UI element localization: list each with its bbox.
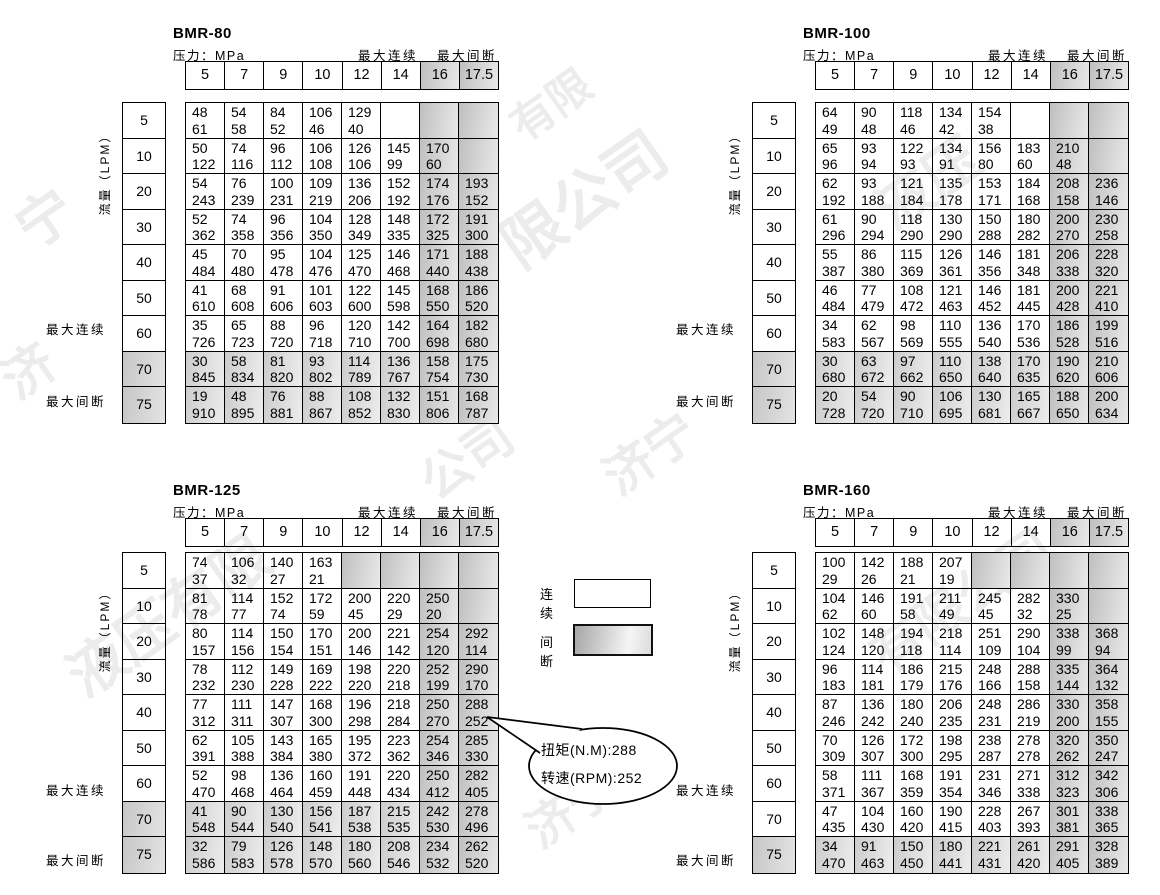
torque-speed-cell: 122600 <box>342 281 381 317</box>
torque-value: 106 <box>309 140 341 157</box>
data-grid: 6449904811846134421543865969394122931349… <box>815 102 1129 424</box>
speed-value: 380 <box>309 748 341 765</box>
speed-value: 362 <box>387 748 419 765</box>
speed-value: 412 <box>426 784 458 801</box>
torque-value: 129 <box>348 104 380 121</box>
torque-speed-cell: 278278 <box>1011 731 1050 767</box>
torque-speed-cell: 188438 <box>459 245 498 281</box>
torque-speed-cell: 206338 <box>1050 245 1089 281</box>
torque-value: 68 <box>231 282 263 299</box>
speed-value: 478 <box>270 263 302 280</box>
torque-speed-cell: 169222 <box>303 660 342 696</box>
torque-value: 147 <box>270 696 302 713</box>
torque-speed-cell: 254346 <box>420 731 459 767</box>
speed-value: 142 <box>387 642 419 659</box>
torque-speed-cell: 91606 <box>264 281 303 317</box>
speed-value: 311 <box>231 713 263 730</box>
flow-row-header: 50 <box>123 281 165 317</box>
torque-value: 148 <box>861 625 893 642</box>
torque-speed-cell: 9394 <box>855 139 894 175</box>
speed-value: 192 <box>822 192 854 209</box>
torque-speed-cell: 168300 <box>303 695 342 731</box>
speed-value: 74 <box>270 606 302 623</box>
torque-speed-cell: 5458 <box>225 103 264 139</box>
torque-value: 330 <box>1056 590 1088 607</box>
torque-speed-cell: 174176 <box>420 174 459 210</box>
empty-cell <box>1011 553 1050 589</box>
torque-value: 77 <box>192 696 224 713</box>
torque-speed-cell: 328389 <box>1089 837 1128 873</box>
torque-value: 250 <box>426 767 458 784</box>
flow-row-header: 30 <box>123 660 165 696</box>
speed-value: 171 <box>978 192 1010 209</box>
torque-speed-cell: 77312 <box>186 695 225 731</box>
torque-speed-cell: 252199 <box>420 660 459 696</box>
speed-value: 94 <box>1095 642 1128 659</box>
speed-value: 356 <box>978 263 1010 280</box>
torque-speed-cell: 96112 <box>264 139 303 175</box>
torque-value: 151 <box>426 388 458 405</box>
torque-speed-cell: 78232 <box>186 660 225 696</box>
speed-value: 620 <box>1056 369 1088 386</box>
torque-value: 211 <box>939 590 971 607</box>
speed-value: 46 <box>309 121 341 138</box>
torque-value: 234 <box>426 838 458 855</box>
torque-speed-cell: 128349 <box>342 210 381 246</box>
speed-value: 730 <box>465 369 498 386</box>
flow-row-header: 70 <box>753 352 795 388</box>
speed-value: 120 <box>861 642 893 659</box>
speed-value: 199 <box>426 677 458 694</box>
flow-row-header: 50 <box>753 281 795 317</box>
torque-speed-cell: 90294 <box>855 210 894 246</box>
torque-value: 146 <box>387 246 419 263</box>
speed-value: 881 <box>270 405 302 422</box>
flow-row-header: 30 <box>753 210 795 246</box>
torque-value: 101 <box>309 282 341 299</box>
torque-value: 190 <box>939 803 971 820</box>
speed-value: 60 <box>861 606 893 623</box>
torque-speed-cell: 16321 <box>303 553 342 589</box>
torque-value: 55 <box>822 246 854 263</box>
torque-value: 186 <box>1056 317 1088 334</box>
speed-value: 45 <box>978 606 1010 623</box>
speed-value: 262 <box>1056 748 1088 765</box>
speed-value: 834 <box>231 369 263 386</box>
torque-speed-cell: 41548 <box>186 802 225 838</box>
speed-value: 306 <box>1095 784 1128 801</box>
torque-speed-cell: 96718 <box>303 316 342 352</box>
torque-value: 220 <box>387 767 419 784</box>
speed-value: 662 <box>900 369 932 386</box>
torque-speed-cell: 364132 <box>1089 660 1128 696</box>
torque-value: 90 <box>900 388 932 405</box>
flow-header-col: 51020304050607075 <box>752 552 796 874</box>
torque-speed-cell: 301381 <box>1050 802 1089 838</box>
torque-value: 146 <box>978 282 1010 299</box>
torque-speed-cell: 70309 <box>816 731 855 767</box>
torque-value: 114 <box>861 661 893 678</box>
torque-speed-cell: 15680 <box>972 139 1011 175</box>
torque-speed-cell: 48895 <box>225 387 264 423</box>
torque-value: 32 <box>192 838 224 855</box>
flow-axis-label: 流量（LPM） <box>96 569 112 689</box>
torque-speed-cell: 74358 <box>225 210 264 246</box>
pressure-col-header: 16 <box>421 62 460 89</box>
speed-value: 606 <box>270 298 302 315</box>
torque-value: 191 <box>900 590 932 607</box>
torque-speed-cell: 70480 <box>225 245 264 281</box>
torque-speed-cell: 186528 <box>1050 316 1089 352</box>
speed-value: 118 <box>900 642 932 659</box>
pressure-col-header: 12 <box>973 62 1012 89</box>
torque-value: 342 <box>1095 767 1128 784</box>
speed-value: 484 <box>192 263 224 280</box>
torque-speed-cell: 10029 <box>816 553 855 589</box>
table-bmr-160: BMR-160 压力：MPa 最大连续 最大间断 5791012141617.5… <box>752 485 1127 885</box>
pressure-col-header: 12 <box>343 62 382 89</box>
torque-speed-cell: 180282 <box>1011 210 1050 246</box>
empty-cell <box>1011 103 1050 139</box>
data-grid: 7437106321402716321817811477152741725920… <box>185 552 499 874</box>
torque-value: 320 <box>1056 732 1088 749</box>
torque-speed-cell: 223362 <box>381 731 420 767</box>
torque-speed-cell: 9048 <box>855 103 894 139</box>
speed-value: 93 <box>900 156 932 173</box>
torque-value: 109 <box>309 175 341 192</box>
torque-speed-cell: 63672 <box>855 352 894 388</box>
torque-value: 228 <box>1095 246 1128 263</box>
speed-value: 157 <box>192 642 224 659</box>
torque-speed-cell: 96356 <box>264 210 303 246</box>
speed-value: 220 <box>348 677 380 694</box>
torque-speed-cell: 112230 <box>225 660 264 696</box>
torque-speed-cell: 184168 <box>1011 174 1050 210</box>
speed-value: 320 <box>1095 263 1128 280</box>
torque-speed-cell: 320262 <box>1050 731 1089 767</box>
pressure-col-header: 7 <box>225 62 264 89</box>
torque-value: 288 <box>1017 661 1049 678</box>
torque-speed-cell: 153171 <box>972 174 1011 210</box>
speed-value: 42 <box>939 121 971 138</box>
table-title: BMR-100 <box>803 25 871 42</box>
torque-speed-cell: 290104 <box>1011 624 1050 660</box>
speed-value: 867 <box>309 405 341 422</box>
speed-value: 231 <box>978 713 1010 730</box>
torque-value: 138 <box>978 353 1010 370</box>
torque-speed-cell: 175730 <box>459 352 498 388</box>
torque-value: 350 <box>1095 732 1128 749</box>
torque-speed-cell: 330200 <box>1050 695 1089 731</box>
torque-speed-cell: 171440 <box>420 245 459 281</box>
pressure-col-header: 17.5 <box>460 62 498 89</box>
torque-value: 114 <box>348 353 380 370</box>
torque-speed-cell: 90544 <box>225 802 264 838</box>
torque-value: 148 <box>309 838 341 855</box>
torque-speed-cell: 180240 <box>894 695 933 731</box>
torque-speed-cell: 160420 <box>894 802 933 838</box>
torque-value: 248 <box>978 661 1010 678</box>
torque-value: 110 <box>939 317 971 334</box>
speed-value: 104 <box>1017 642 1049 659</box>
speed-value: 40 <box>348 121 380 138</box>
speed-value: 116 <box>231 156 263 173</box>
torque-speed-cell: 292114 <box>459 624 498 660</box>
speed-value: 710 <box>348 334 380 351</box>
speed-value: 108 <box>309 156 341 173</box>
torque-speed-cell: 290170 <box>459 660 498 696</box>
pressure-col-header: 10 <box>303 62 342 89</box>
speed-value: 459 <box>309 784 341 801</box>
torque-value: 84 <box>270 104 302 121</box>
torque-speed-cell: 126361 <box>933 245 972 281</box>
torque-value: 136 <box>270 767 302 784</box>
torque-value: 149 <box>270 661 302 678</box>
torque-value: 358 <box>1095 696 1128 713</box>
torque-speed-cell: 126106 <box>342 139 381 175</box>
torque-speed-cell: 105388 <box>225 731 264 767</box>
speed-value: 37 <box>192 571 224 588</box>
legend-intermittent-label: 间断 <box>540 632 556 670</box>
speed-value: 356 <box>270 227 302 244</box>
torque-value: 220 <box>387 661 419 678</box>
speed-value: 106 <box>348 156 380 173</box>
torque-value: 291 <box>1056 838 1088 855</box>
torque-value: 122 <box>900 140 932 157</box>
table-title: BMR-160 <box>803 482 871 499</box>
torque-value: 87 <box>822 696 854 713</box>
speed-value: 538 <box>348 819 380 836</box>
speed-value: 403 <box>978 819 1010 836</box>
callout-text: 扭矩(N.M):288 转速(RPM):252 <box>541 736 676 792</box>
speed-value: 720 <box>270 334 302 351</box>
speed-value: 767 <box>387 369 419 386</box>
torque-value: 105 <box>231 732 263 749</box>
torque-speed-cell: 198295 <box>933 731 972 767</box>
torque-speed-cell: 143384 <box>264 731 303 767</box>
torque-value: 102 <box>822 625 854 642</box>
speed-value: 120 <box>426 642 458 659</box>
torque-value: 170 <box>309 625 341 642</box>
torque-value: 143 <box>270 732 302 749</box>
speed-value: 480 <box>231 263 263 280</box>
torque-value: 46 <box>822 282 854 299</box>
speed-value: 578 <box>270 855 302 872</box>
speed-value: 52 <box>270 121 302 138</box>
speed-value: 680 <box>465 334 498 351</box>
flow-row-header: 70 <box>123 802 165 838</box>
torque-value: 90 <box>861 104 893 121</box>
torque-speed-cell: 190415 <box>933 802 972 838</box>
torque-speed-cell: 181348 <box>1011 245 1050 281</box>
speed-value: 61 <box>192 121 224 138</box>
torque-speed-cell: 54720 <box>855 387 894 423</box>
flow-row-header: 70 <box>123 352 165 388</box>
torque-value: 48 <box>231 388 263 405</box>
torque-value: 104 <box>309 246 341 263</box>
pressure-header-row: 5791012141617.5 <box>815 61 1129 90</box>
pressure-col-header: 7 <box>225 519 264 546</box>
speed-value: 698 <box>426 334 458 351</box>
pressure-col-header: 17.5 <box>460 519 498 546</box>
speed-value: 540 <box>978 334 1010 351</box>
torque-value: 188 <box>900 554 932 571</box>
empty-cell <box>342 553 381 589</box>
speed-value: 124 <box>822 642 854 659</box>
torque-value: 254 <box>426 625 458 642</box>
torque-speed-cell: 111311 <box>225 695 264 731</box>
speed-value: 806 <box>426 405 458 422</box>
torque-value: 93 <box>309 353 341 370</box>
torque-value: 248 <box>978 696 1010 713</box>
torque-value: 210 <box>1095 353 1128 370</box>
pressure-col-header: 5 <box>186 519 225 546</box>
speed-value: 78 <box>192 606 224 623</box>
speed-value: 535 <box>387 819 419 836</box>
speed-value: 151 <box>309 642 341 659</box>
torque-value: 136 <box>348 175 380 192</box>
empty-cell <box>1089 589 1128 625</box>
torque-value: 142 <box>387 317 419 334</box>
speed-value: 640 <box>978 369 1010 386</box>
torque-speed-cell: 170635 <box>1011 352 1050 388</box>
table-subheader: 压力：MPa 最大连续 最大间断 <box>173 502 497 517</box>
torque-speed-cell: 20719 <box>933 553 972 589</box>
max-continuous-row-label: 最大连续 <box>36 780 106 799</box>
torque-value: 208 <box>387 838 419 855</box>
pressure-col-header: 17.5 <box>1090 519 1128 546</box>
speed-value: 448 <box>348 784 380 801</box>
pressure-col-header: 14 <box>1012 62 1051 89</box>
torque-value: 74 <box>192 554 224 571</box>
table-subheader: 压力：MPa 最大连续 最大间断 <box>173 45 497 60</box>
torque-speed-cell: 8178 <box>186 589 225 625</box>
pressure-col-header: 9 <box>894 519 933 546</box>
torque-speed-cell: 93802 <box>303 352 342 388</box>
torque-value: 106 <box>309 104 341 121</box>
torque-speed-cell: 20728 <box>816 387 855 423</box>
torque-value: 278 <box>1017 732 1049 749</box>
speed-value: 170 <box>465 677 498 694</box>
torque-value: 146 <box>861 590 893 607</box>
max-intermittent-row-label: 最大间断 <box>666 391 736 410</box>
torque-value: 187 <box>348 803 380 820</box>
speed-value: 230 <box>231 677 263 694</box>
torque-speed-cell: 54243 <box>186 174 225 210</box>
speed-value: 463 <box>861 855 893 872</box>
speed-value: 380 <box>861 263 893 280</box>
torque-value: 335 <box>1056 661 1088 678</box>
speed-value: 570 <box>309 855 341 872</box>
speed-value: 372 <box>348 748 380 765</box>
flow-row-header: 30 <box>123 210 165 246</box>
speed-value: 695 <box>939 405 971 422</box>
torque-speed-cell: 150288 <box>972 210 1011 246</box>
torque-value: 221 <box>978 838 1010 855</box>
speed-value: 540 <box>270 819 302 836</box>
flow-axis-label: 流量（LPM） <box>96 112 112 232</box>
callout-speed-line: 转速(RPM):252 <box>541 764 676 792</box>
speed-value: 720 <box>861 405 893 422</box>
speed-value: 476 <box>309 263 341 280</box>
flow-row-header: 10 <box>753 139 795 175</box>
speed-value: 338 <box>1056 263 1088 280</box>
torque-speed-cell: 18360 <box>1011 139 1050 175</box>
torque-value: 250 <box>426 590 458 607</box>
torque-value: 142 <box>861 554 893 571</box>
speed-value: 435 <box>822 819 854 836</box>
torque-value: 136 <box>861 696 893 713</box>
torque-speed-cell: 12293 <box>894 139 933 175</box>
torque-speed-cell: 168550 <box>420 281 459 317</box>
speed-value: 296 <box>822 227 854 244</box>
torque-speed-cell: 267393 <box>1011 802 1050 838</box>
speed-value: 219 <box>1017 713 1049 730</box>
torque-speed-cell: 180560 <box>342 837 381 873</box>
torque-speed-cell: 342306 <box>1089 766 1128 802</box>
max-intermittent-row-label: 最大间断 <box>36 391 106 410</box>
torque-speed-cell: 33899 <box>1050 624 1089 660</box>
flow-row-header: 60 <box>123 766 165 802</box>
torque-value: 130 <box>939 211 971 228</box>
torque-value: 30 <box>192 353 224 370</box>
torque-value: 126 <box>348 140 380 157</box>
speed-value: 726 <box>192 334 224 351</box>
torque-value: 76 <box>270 388 302 405</box>
torque-value: 180 <box>939 838 971 855</box>
torque-speed-cell: 149228 <box>264 660 303 696</box>
torque-value: 20 <box>822 388 854 405</box>
speed-value: 634 <box>1095 405 1128 422</box>
torque-speed-cell: 86380 <box>855 245 894 281</box>
torque-speed-cell: 114156 <box>225 624 264 660</box>
speed-value: 350 <box>309 227 341 244</box>
torque-speed-cell: 125470 <box>342 245 381 281</box>
speed-value: 598 <box>387 298 419 315</box>
torque-speed-cell: 148120 <box>855 624 894 660</box>
torque-value: 250 <box>426 696 458 713</box>
torque-speed-cell: 186179 <box>894 660 933 696</box>
torque-value: 108 <box>348 388 380 405</box>
max-continuous-row-label: 最大连续 <box>666 319 736 338</box>
torque-speed-cell: 136464 <box>264 766 303 802</box>
torque-speed-cell: 136540 <box>972 316 1011 352</box>
speed-value: 536 <box>1017 334 1049 351</box>
torque-value: 134 <box>939 140 971 157</box>
torque-value: 292 <box>465 625 498 642</box>
torque-speed-cell: 74116 <box>225 139 264 175</box>
torque-value: 93 <box>861 140 893 157</box>
speed-value: 99 <box>1056 642 1088 659</box>
torque-speed-cell: 19158 <box>894 589 933 625</box>
torque-value: 54 <box>231 104 263 121</box>
flow-row-header: 70 <box>753 802 795 838</box>
torque-speed-cell: 254120 <box>420 624 459 660</box>
torque-speed-cell: 168787 <box>459 387 498 423</box>
torque-speed-cell: 172325 <box>420 210 459 246</box>
torque-speed-cell: 81820 <box>264 352 303 388</box>
torque-value: 208 <box>1056 175 1088 192</box>
torque-speed-cell: 8452 <box>264 103 303 139</box>
torque-value: 174 <box>426 175 458 192</box>
speed-value: 910 <box>192 405 224 422</box>
speed-value: 188 <box>861 192 893 209</box>
speed-value: 430 <box>861 819 893 836</box>
speed-value: 323 <box>1056 784 1088 801</box>
speed-value: 555 <box>939 334 971 351</box>
speed-value: 58 <box>900 606 932 623</box>
pressure-col-header: 9 <box>894 62 933 89</box>
